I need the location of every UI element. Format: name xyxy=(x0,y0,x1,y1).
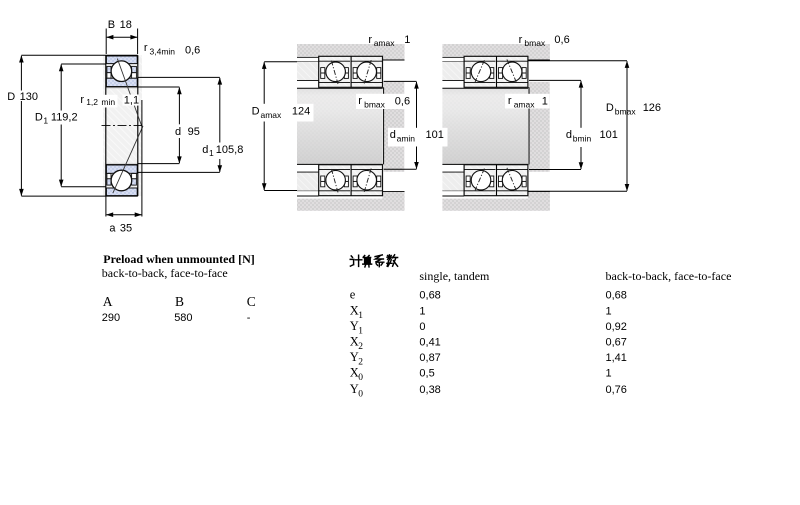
svg-text:min: min xyxy=(101,97,115,107)
svg-text:d: d xyxy=(175,126,181,138)
svg-text:0,5: 0,5 xyxy=(419,368,434,380)
svg-text:119,2: 119,2 xyxy=(51,111,78,123)
svg-text:580: 580 xyxy=(174,312,192,324)
svg-text:amin: amin xyxy=(397,133,416,143)
svg-text:0,87: 0,87 xyxy=(419,352,440,364)
svg-text:bmax: bmax xyxy=(524,38,546,48)
svg-text:0,6: 0,6 xyxy=(554,34,569,46)
svg-text:0: 0 xyxy=(358,389,363,399)
svg-text:r: r xyxy=(80,94,84,106)
svg-text:A: A xyxy=(103,294,113,309)
svg-text:1,1: 1,1 xyxy=(124,95,139,107)
svg-text:D: D xyxy=(252,106,260,118)
svg-text:B: B xyxy=(108,19,115,31)
svg-text:bmin: bmin xyxy=(573,133,592,143)
svg-text:95: 95 xyxy=(188,126,200,138)
svg-text:back-to-back, face-to-face: back-to-back, face-to-face xyxy=(102,266,228,280)
svg-text:1: 1 xyxy=(358,327,363,337)
svg-text:B: B xyxy=(175,294,184,309)
svg-text:1: 1 xyxy=(542,95,548,107)
svg-text:-: - xyxy=(247,312,251,324)
svg-text:0,41: 0,41 xyxy=(419,337,440,349)
svg-text:d: d xyxy=(566,129,572,141)
svg-text:124: 124 xyxy=(292,106,310,118)
svg-text:r: r xyxy=(508,95,512,107)
svg-text:bmax: bmax xyxy=(364,100,386,110)
svg-text:0,38: 0,38 xyxy=(419,384,440,396)
svg-text:amax: amax xyxy=(261,110,283,120)
svg-text:0,68: 0,68 xyxy=(606,289,627,301)
svg-text:18: 18 xyxy=(120,19,132,31)
svg-text:3,4min: 3,4min xyxy=(150,47,176,57)
svg-text:1: 1 xyxy=(404,34,410,46)
svg-text:130: 130 xyxy=(20,91,38,103)
svg-text:1: 1 xyxy=(209,148,214,158)
svg-text:Preload when unmounted [N]: Preload when unmounted [N] xyxy=(103,252,254,266)
svg-text:101: 101 xyxy=(426,129,444,141)
svg-text:r: r xyxy=(519,34,523,46)
svg-text:0,6: 0,6 xyxy=(185,44,200,56)
svg-text:1,41: 1,41 xyxy=(606,352,627,364)
svg-text:single, tandem: single, tandem xyxy=(419,269,490,283)
svg-text:2: 2 xyxy=(358,358,363,368)
svg-text:D: D xyxy=(606,102,614,114)
svg-text:126: 126 xyxy=(643,102,661,114)
svg-text:0,67: 0,67 xyxy=(606,337,627,349)
svg-text:C: C xyxy=(247,294,256,309)
svg-text:2: 2 xyxy=(358,342,363,352)
svg-text:1,2: 1,2 xyxy=(86,97,98,107)
svg-text:1: 1 xyxy=(419,306,425,318)
svg-text:r: r xyxy=(144,42,148,54)
svg-text:105,8: 105,8 xyxy=(216,144,244,156)
svg-text:0: 0 xyxy=(358,373,363,383)
svg-text:1: 1 xyxy=(606,368,612,380)
svg-text:bmax: bmax xyxy=(615,107,637,117)
svg-text:a: a xyxy=(109,222,116,234)
svg-text:D: D xyxy=(7,91,15,103)
svg-text:d: d xyxy=(390,129,396,141)
svg-text:0: 0 xyxy=(419,321,425,333)
svg-text:1: 1 xyxy=(43,116,48,126)
svg-text:D: D xyxy=(35,111,43,123)
svg-text:back-to-back, face-to-face: back-to-back, face-to-face xyxy=(606,269,732,283)
svg-text:0,6: 0,6 xyxy=(395,95,410,107)
svg-text:r: r xyxy=(368,34,372,46)
svg-text:amax: amax xyxy=(514,100,536,110)
svg-text:101: 101 xyxy=(600,129,618,141)
svg-text:290: 290 xyxy=(102,312,120,324)
svg-text:35: 35 xyxy=(120,222,132,234)
svg-text:1: 1 xyxy=(358,311,363,321)
svg-text:d: d xyxy=(202,144,208,156)
svg-text:1: 1 xyxy=(606,306,612,318)
svg-text:0,68: 0,68 xyxy=(419,289,440,301)
svg-text:r: r xyxy=(358,95,362,107)
svg-text:0,92: 0,92 xyxy=(606,321,627,333)
svg-text:amax: amax xyxy=(374,38,396,48)
svg-text:e: e xyxy=(350,287,356,301)
svg-text:0,76: 0,76 xyxy=(606,384,627,396)
